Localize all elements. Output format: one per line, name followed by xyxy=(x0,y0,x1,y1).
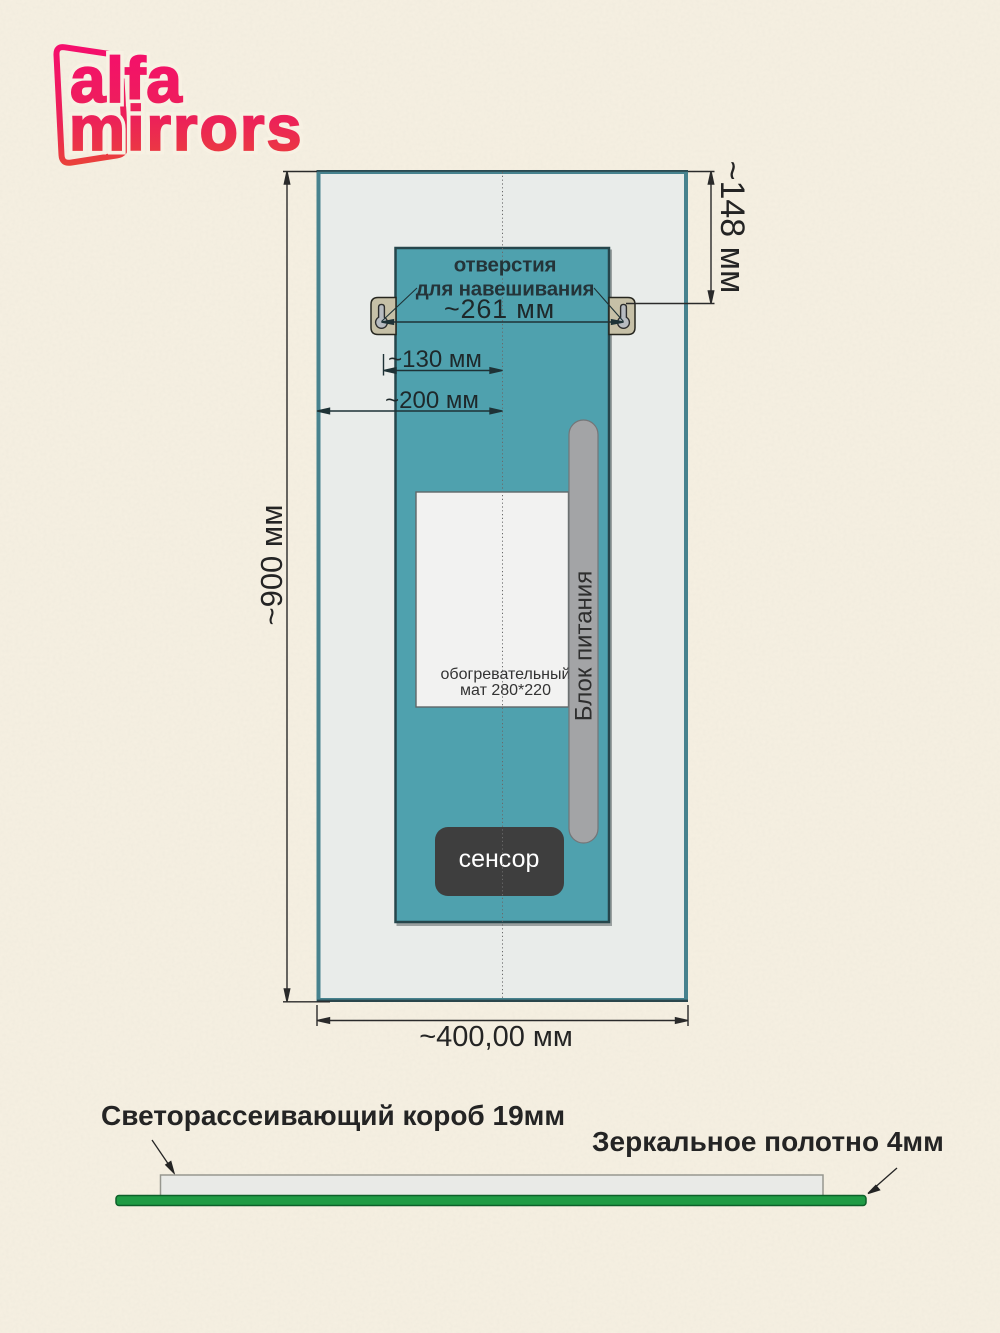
svg-text:Блок питания: Блок питания xyxy=(571,571,598,721)
svg-text:~130 мм: ~130 мм xyxy=(388,346,482,373)
svg-text:~148 мм: ~148 мм xyxy=(713,161,751,294)
svg-text:Зеркальное полотно 4мм: Зеркальное полотно 4мм xyxy=(592,1126,944,1157)
svg-text:сенсор: сенсор xyxy=(459,845,540,873)
svg-text:~400,00 мм: ~400,00 мм xyxy=(419,1021,573,1053)
svg-text:~200 мм: ~200 мм xyxy=(385,387,479,414)
svg-text:~900 мм: ~900 мм xyxy=(254,504,289,625)
svg-text:отверстия: отверстия xyxy=(454,254,557,277)
svg-text:мат 280*220: мат 280*220 xyxy=(460,682,551,699)
svg-text:~261 мм: ~261 мм xyxy=(444,294,555,324)
svg-text:обогревательный: обогревательный xyxy=(441,666,571,683)
svg-text:Светорассеивающий короб 19мм: Светорассеивающий короб 19мм xyxy=(101,1100,565,1131)
svg-text:mirrors: mirrors xyxy=(69,94,304,164)
